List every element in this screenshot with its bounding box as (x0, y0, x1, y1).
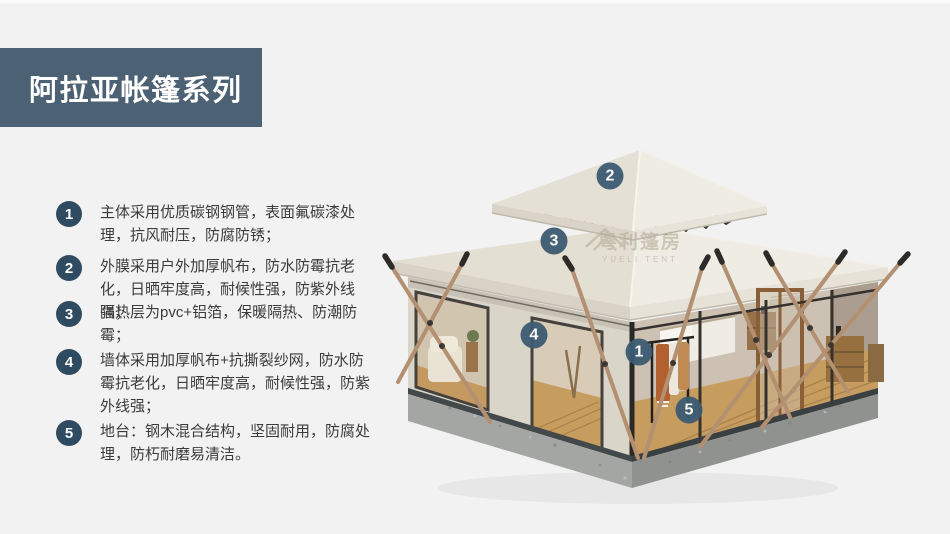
tent-marker-3: 3 (541, 228, 568, 255)
top-edge-strip (0, 0, 950, 3)
tent-illustration: 粤利篷房 YUELI TENT 2 3 4 1 5 (370, 140, 945, 532)
garment-tan (678, 342, 689, 390)
feature-number-badge: 4 (56, 349, 82, 375)
side-table (868, 344, 884, 382)
feature-number-badge: 1 (56, 201, 82, 227)
tent-marker-4: 4 (521, 322, 548, 349)
title-box: 阿拉亚帐篷系列 (0, 48, 262, 127)
plant (467, 330, 479, 342)
tent-marker-5: 5 (676, 397, 703, 424)
feature-text: 墙体采用加厚帆布+抗撕裂纱网，防水防霉抗老化，日晒牢度高，耐候性强，防紫外线强； (100, 349, 374, 418)
feature-item-3: 3 隔热层为pvc+铝箔，保暖隔热、防潮防霉； (56, 301, 374, 347)
page-title: 阿拉亚帐篷系列 (0, 67, 243, 109)
feature-item-1: 1 主体采用优质碳钢钢管，表面氟碳漆处理，抗风耐压，防腐防锈； (56, 201, 374, 247)
brand-roof-icon (575, 226, 635, 252)
tent-marker-2: 2 (597, 163, 624, 190)
brand-watermark: 粤利篷房 YUELI TENT (575, 226, 705, 264)
feature-text: 主体采用优质碳钢钢管，表面氟碳漆处理，抗风耐压，防腐防锈； (100, 201, 374, 247)
feature-item-4: 4 墙体采用加厚帆布+抗撕裂纱网，防水防霉抗老化，日晒牢度高，耐候性强，防紫外线… (56, 349, 374, 418)
feature-item-5: 5 地台：钢木混合结构，坚固耐用，防腐处理，防朽耐磨易清洁。 (56, 420, 374, 466)
feature-number-badge: 5 (56, 420, 82, 446)
feature-text: 地台：钢木混合结构，坚固耐用，防腐处理，防朽耐磨易清洁。 (100, 420, 374, 466)
feature-number-badge: 2 (56, 255, 82, 281)
slide: 阿拉亚帐篷系列 1 主体采用优质碳钢钢管，表面氟碳漆处理，抗风耐压，防腐防锈； … (0, 0, 950, 534)
brand-name-en: YUELI TENT (575, 255, 705, 264)
tent-marker-1: 1 (626, 339, 653, 366)
feature-text: 隔热层为pvc+铝箔，保暖隔热、防潮防霉； (100, 301, 374, 347)
feature-number-badge: 3 (56, 301, 82, 327)
tent-render (370, 140, 945, 532)
